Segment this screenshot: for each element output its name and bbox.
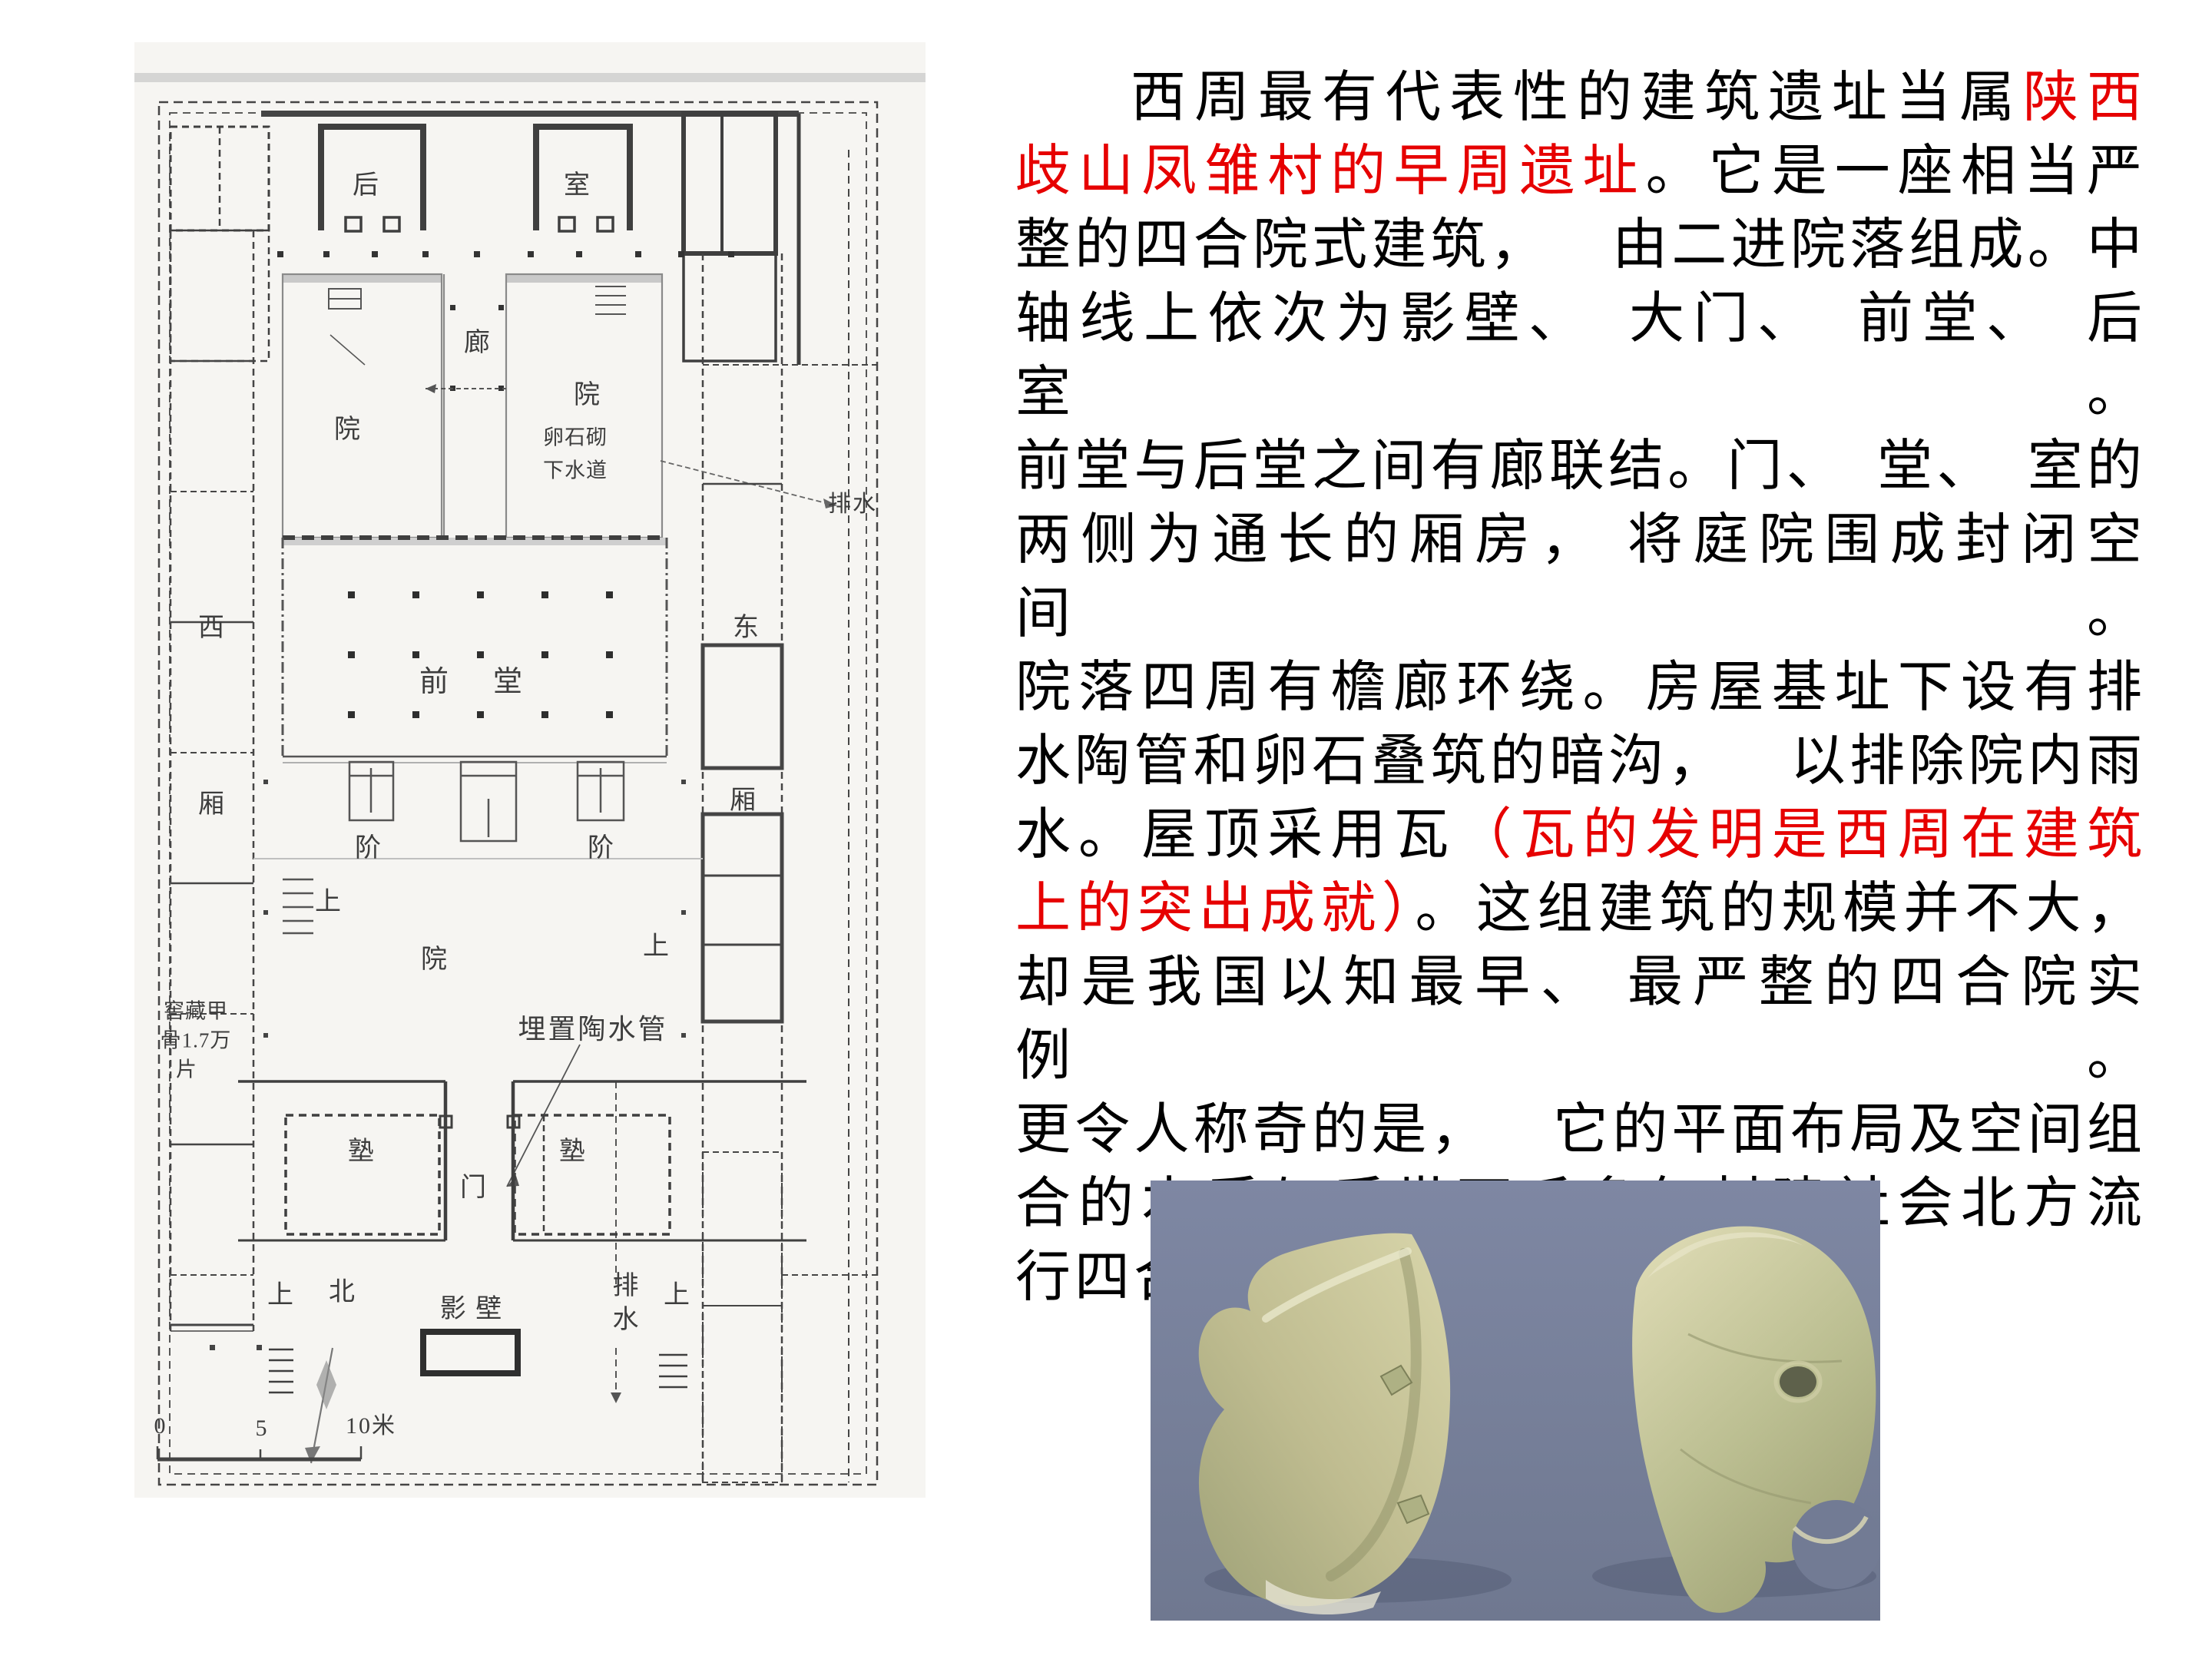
plan-label-up-right: 上 <box>643 934 671 960</box>
text-line: 整的四合院式建筑， 由二进院落组成。中 <box>1015 208 2146 282</box>
plan-label-fang-right: 厢 <box>730 788 757 814</box>
plan-label-drain-right: 排水 <box>828 493 877 516</box>
plan-label-shu-right: 塾 <box>559 1139 587 1165</box>
plain-text: 轴线上依次为影壁、 大门、 前堂、 后室。 <box>1015 288 2146 423</box>
plan-label-front-hall: 前 堂 <box>419 667 530 697</box>
plan-label-north: 北 <box>329 1280 356 1306</box>
text-line: 前堂与后堂之间有廊联结。门、 堂、 室的 <box>1015 429 2146 503</box>
plain-text: 院落四周有檐廊环绕。房屋基址下设有排 <box>1015 657 2146 718</box>
plan-label-gate: 门 <box>460 1175 488 1201</box>
text-line: 院落四周有檐廊环绕。房屋基址下设有排 <box>1015 651 2146 724</box>
plain-text: 更令人称奇的是， 它的平面布局及空间组 <box>1015 1099 2146 1161</box>
plan-label-court-lower: 院 <box>421 947 449 973</box>
plan-label-rear-room-left: 后 <box>353 173 380 199</box>
plan-label-step-right: 阶 <box>588 836 615 862</box>
plan-label-screen-wall: 影 壁 <box>440 1296 504 1323</box>
roof-tiles-image <box>1151 1181 1880 1621</box>
plan-label-buried-pipe: 埋置陶水管 <box>518 1015 667 1043</box>
plan-label-drain-bottom: 排水 <box>609 1271 635 1339</box>
plan-label-rear-room-right: 室 <box>564 173 591 199</box>
plan-label-fang-left: 厢 <box>198 792 226 818</box>
plain-text: 两侧为通长的厢房， 将庭院围成封闭空间。 <box>1015 509 2146 644</box>
plan-label-oracle-2: 骨1.7万 <box>161 1031 232 1051</box>
plan-label-up-bottom-right: 上 <box>664 1283 691 1309</box>
plan-label-oracle-1: 窖藏甲 <box>164 1002 228 1022</box>
highlighted-text: 歧山凤雏村的早周遗址 <box>1015 141 1646 202</box>
text-line: 轴线上依次为影壁、 大门、 前堂、 后室。 <box>1015 282 2146 429</box>
text-line: 却是我国以知最早、 最严整的四合院实例。 <box>1015 945 2146 1093</box>
plan-label-east: 东 <box>733 615 760 641</box>
text-line: 上的突出成就）。这组建筑的规模并不大， <box>1015 872 2146 945</box>
plan-label-oracle-3: 片 <box>176 1060 197 1081</box>
text-line: 更令人称奇的是， 它的平面布局及空间组 <box>1015 1093 2146 1167</box>
body-text: 西周最有代表性的建筑遗址当属陕西歧山凤雏村的早周遗址。它是一座相当严整的四合院式… <box>1015 61 2146 1314</box>
highlighted-text: 陕西 <box>2023 67 2146 128</box>
text-line: 西周最有代表性的建筑遗址当属陕西 <box>1015 61 2146 134</box>
text-line: 两侧为通长的厢房， 将庭院围成封闭空间。 <box>1015 503 2146 651</box>
plan-label-corridor: 廊 <box>464 330 492 356</box>
plan-label-court-upper-right: 院 <box>574 382 601 409</box>
text-line: 水。屋顶采用瓦（瓦的发明是西周在建筑 <box>1015 798 2146 872</box>
plan-label-shu-left: 塾 <box>348 1139 376 1165</box>
plan-scale-0: 0 <box>154 1415 167 1438</box>
plain-text: 整的四合院式建筑， 由二进院落组成。中 <box>1015 214 2146 276</box>
tile-hole <box>1780 1366 1816 1397</box>
highlighted-text: 上的突出成就） <box>1015 878 1416 939</box>
floor-plan-drawing <box>134 42 926 1498</box>
floor-plan-figure: 后 室 廊 院 院 卵石砌 下水道 排水 西 东 厢 厢 前 堂 阶 阶 上 上… <box>134 42 926 1498</box>
plan-scale-10: 10米 <box>346 1415 396 1438</box>
plan-label-court-upper-left: 院 <box>334 417 362 443</box>
plain-text: 水。屋顶采用瓦 <box>1015 804 1456 866</box>
plain-text: 。这组建筑的规模并不大， <box>1416 878 2146 939</box>
roof-tiles-photo <box>1151 1181 1880 1621</box>
plan-label-step-left: 阶 <box>355 836 382 862</box>
text-line: 水陶管和卵石叠筑的暗沟， 以排除院内雨 <box>1015 724 2146 798</box>
plan-label-west: 西 <box>198 615 226 641</box>
plan-label-drain-note-1: 卵石砌 <box>543 428 608 449</box>
plan-label-up-bottom-left: 上 <box>267 1283 295 1309</box>
plain-text: 西周最有代表性的建筑遗址当属 <box>1131 67 2023 128</box>
plain-text: 前堂与后堂之间有廊联结。门、 堂、 室的 <box>1015 435 2146 497</box>
scan-band <box>134 73 926 82</box>
tile-notch <box>1792 1500 1880 1589</box>
highlighted-text: （瓦的发明是西周在建筑 <box>1456 804 2146 866</box>
plan-scale-5: 5 <box>256 1417 269 1440</box>
plain-text: 水陶管和卵石叠筑的暗沟， 以排除院内雨 <box>1015 730 2146 792</box>
slide: 西周最有代表性的建筑遗址当属陕西歧山凤雏村的早周遗址。它是一座相当严整的四合院式… <box>0 0 2212 1659</box>
plan-label-up-left: 上 <box>315 889 343 916</box>
text-line: 歧山凤雏村的早周遗址。它是一座相当严 <box>1015 134 2146 208</box>
plain-text: 。它是一座相当严 <box>1646 141 2146 202</box>
plain-text: 却是我国以知最早、 最严整的四合院实例。 <box>1015 952 2146 1087</box>
plan-label-drain-note-2: 下水道 <box>543 461 608 482</box>
